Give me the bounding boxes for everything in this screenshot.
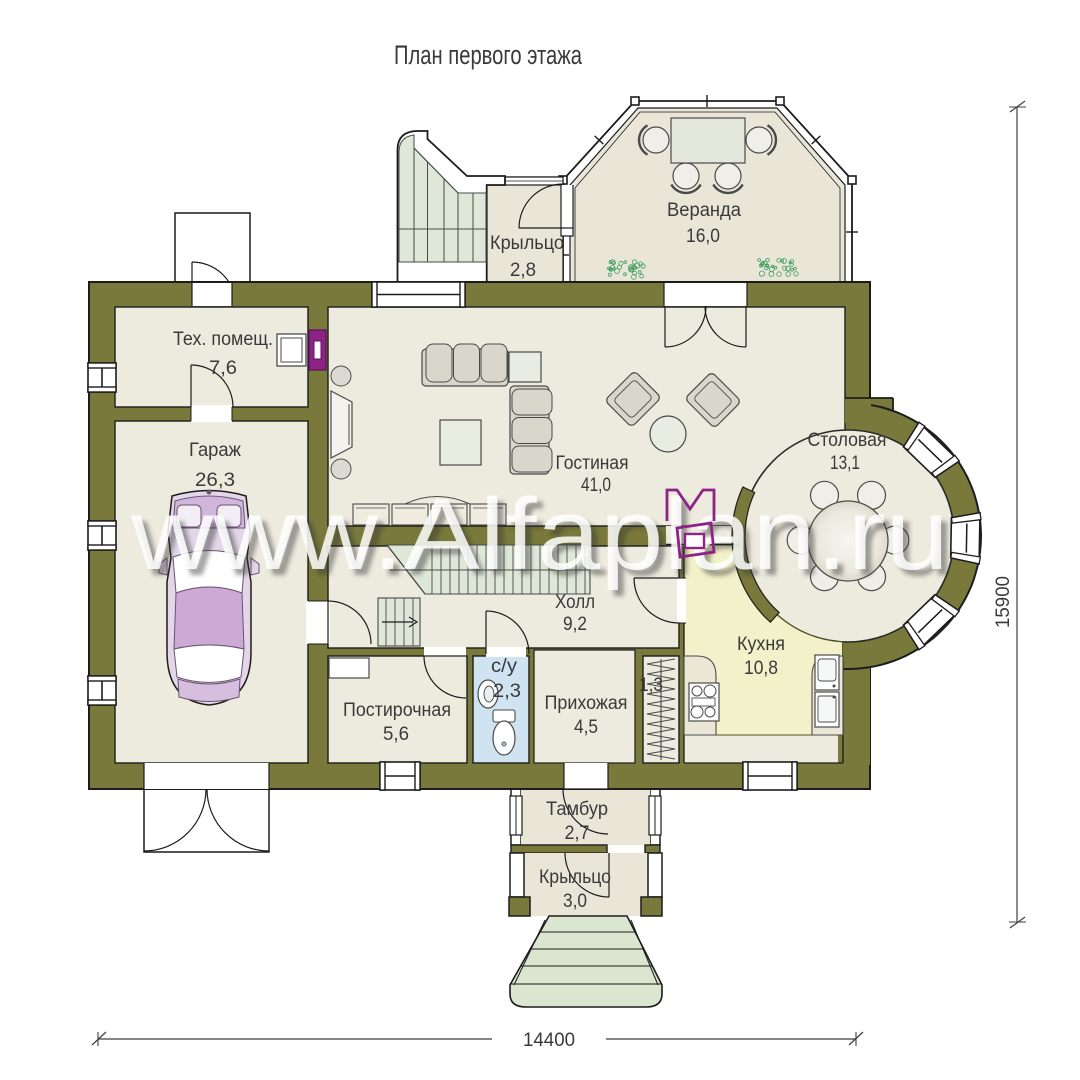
- svg-text:Тех. помещ.: Тех. помещ.: [173, 329, 273, 350]
- svg-text:16,0: 16,0: [686, 226, 720, 247]
- svg-text:3,0: 3,0: [563, 891, 587, 912]
- svg-text:Столовая: Столовая: [808, 430, 887, 451]
- svg-text:7,6: 7,6: [209, 358, 237, 379]
- svg-text:Прихожая: Прихожая: [545, 693, 628, 714]
- svg-text:www.Alfaplan.ru: www.Alfaplan.ru: [130, 479, 949, 591]
- svg-text:Постирочная: Постирочная: [343, 700, 451, 721]
- svg-text:Кухня: Кухня: [737, 634, 785, 655]
- svg-text:Гараж: Гараж: [189, 440, 241, 461]
- svg-text:10,8: 10,8: [744, 658, 778, 679]
- svg-text:с/у: с/у: [491, 656, 518, 677]
- svg-text:Крыльцо: Крыльцо: [490, 233, 564, 254]
- svg-text:5,6: 5,6: [383, 724, 409, 745]
- svg-text:2,3: 2,3: [493, 681, 521, 702]
- svg-text:2,8: 2,8: [510, 260, 536, 281]
- svg-text:1,3: 1,3: [639, 675, 663, 696]
- svg-text:2,7: 2,7: [565, 823, 590, 844]
- svg-text:9,2: 9,2: [563, 614, 587, 635]
- svg-text:Тамбур: Тамбур: [546, 799, 608, 820]
- svg-text:Веранда: Веранда: [667, 200, 741, 221]
- svg-text:Крыльцо: Крыльцо: [539, 867, 611, 888]
- svg-text:14400: 14400: [523, 1030, 575, 1051]
- svg-text:4,5: 4,5: [574, 717, 598, 738]
- svg-text:15900: 15900: [993, 576, 1014, 628]
- svg-text:План первого этажа: План первого этажа: [394, 40, 583, 70]
- svg-text:Гостиная: Гостиная: [556, 453, 629, 474]
- svg-text:13,1: 13,1: [830, 453, 860, 474]
